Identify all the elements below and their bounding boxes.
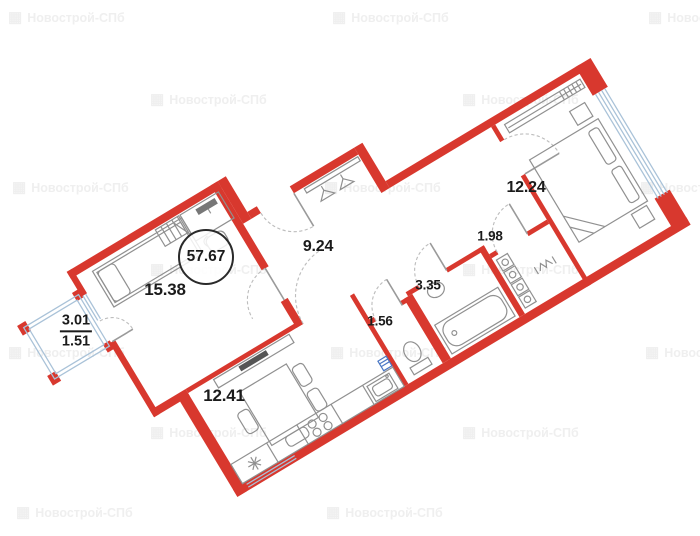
- area-label-bathroom: 3.35: [415, 278, 440, 293]
- area-label-living-room: 15.38: [144, 280, 186, 300]
- labels: 15.38 9.24 12.41 12.24 1.98 3.35 1.56 57…: [0, 0, 700, 536]
- area-label-bedroom: 12.24: [506, 179, 545, 197]
- area-label-storage: 1.98: [477, 229, 502, 244]
- total-area-value: 57.67: [187, 248, 226, 266]
- area-label-wc: 1.56: [367, 314, 392, 329]
- balcony-area-label: 3.01 1.51: [60, 312, 92, 349]
- balcony-area-coeff: 1.51: [60, 332, 92, 350]
- area-label-hallway: 9.24: [303, 238, 333, 256]
- total-area-badge: 57.67: [178, 229, 234, 285]
- balcony-area-full: 3.01: [60, 312, 92, 332]
- floorplan-page: ▦Новострой-СПб ▦Новострой-СПб ▦Новострой…: [0, 0, 700, 536]
- area-label-kitchen-living: 12.41: [203, 386, 245, 406]
